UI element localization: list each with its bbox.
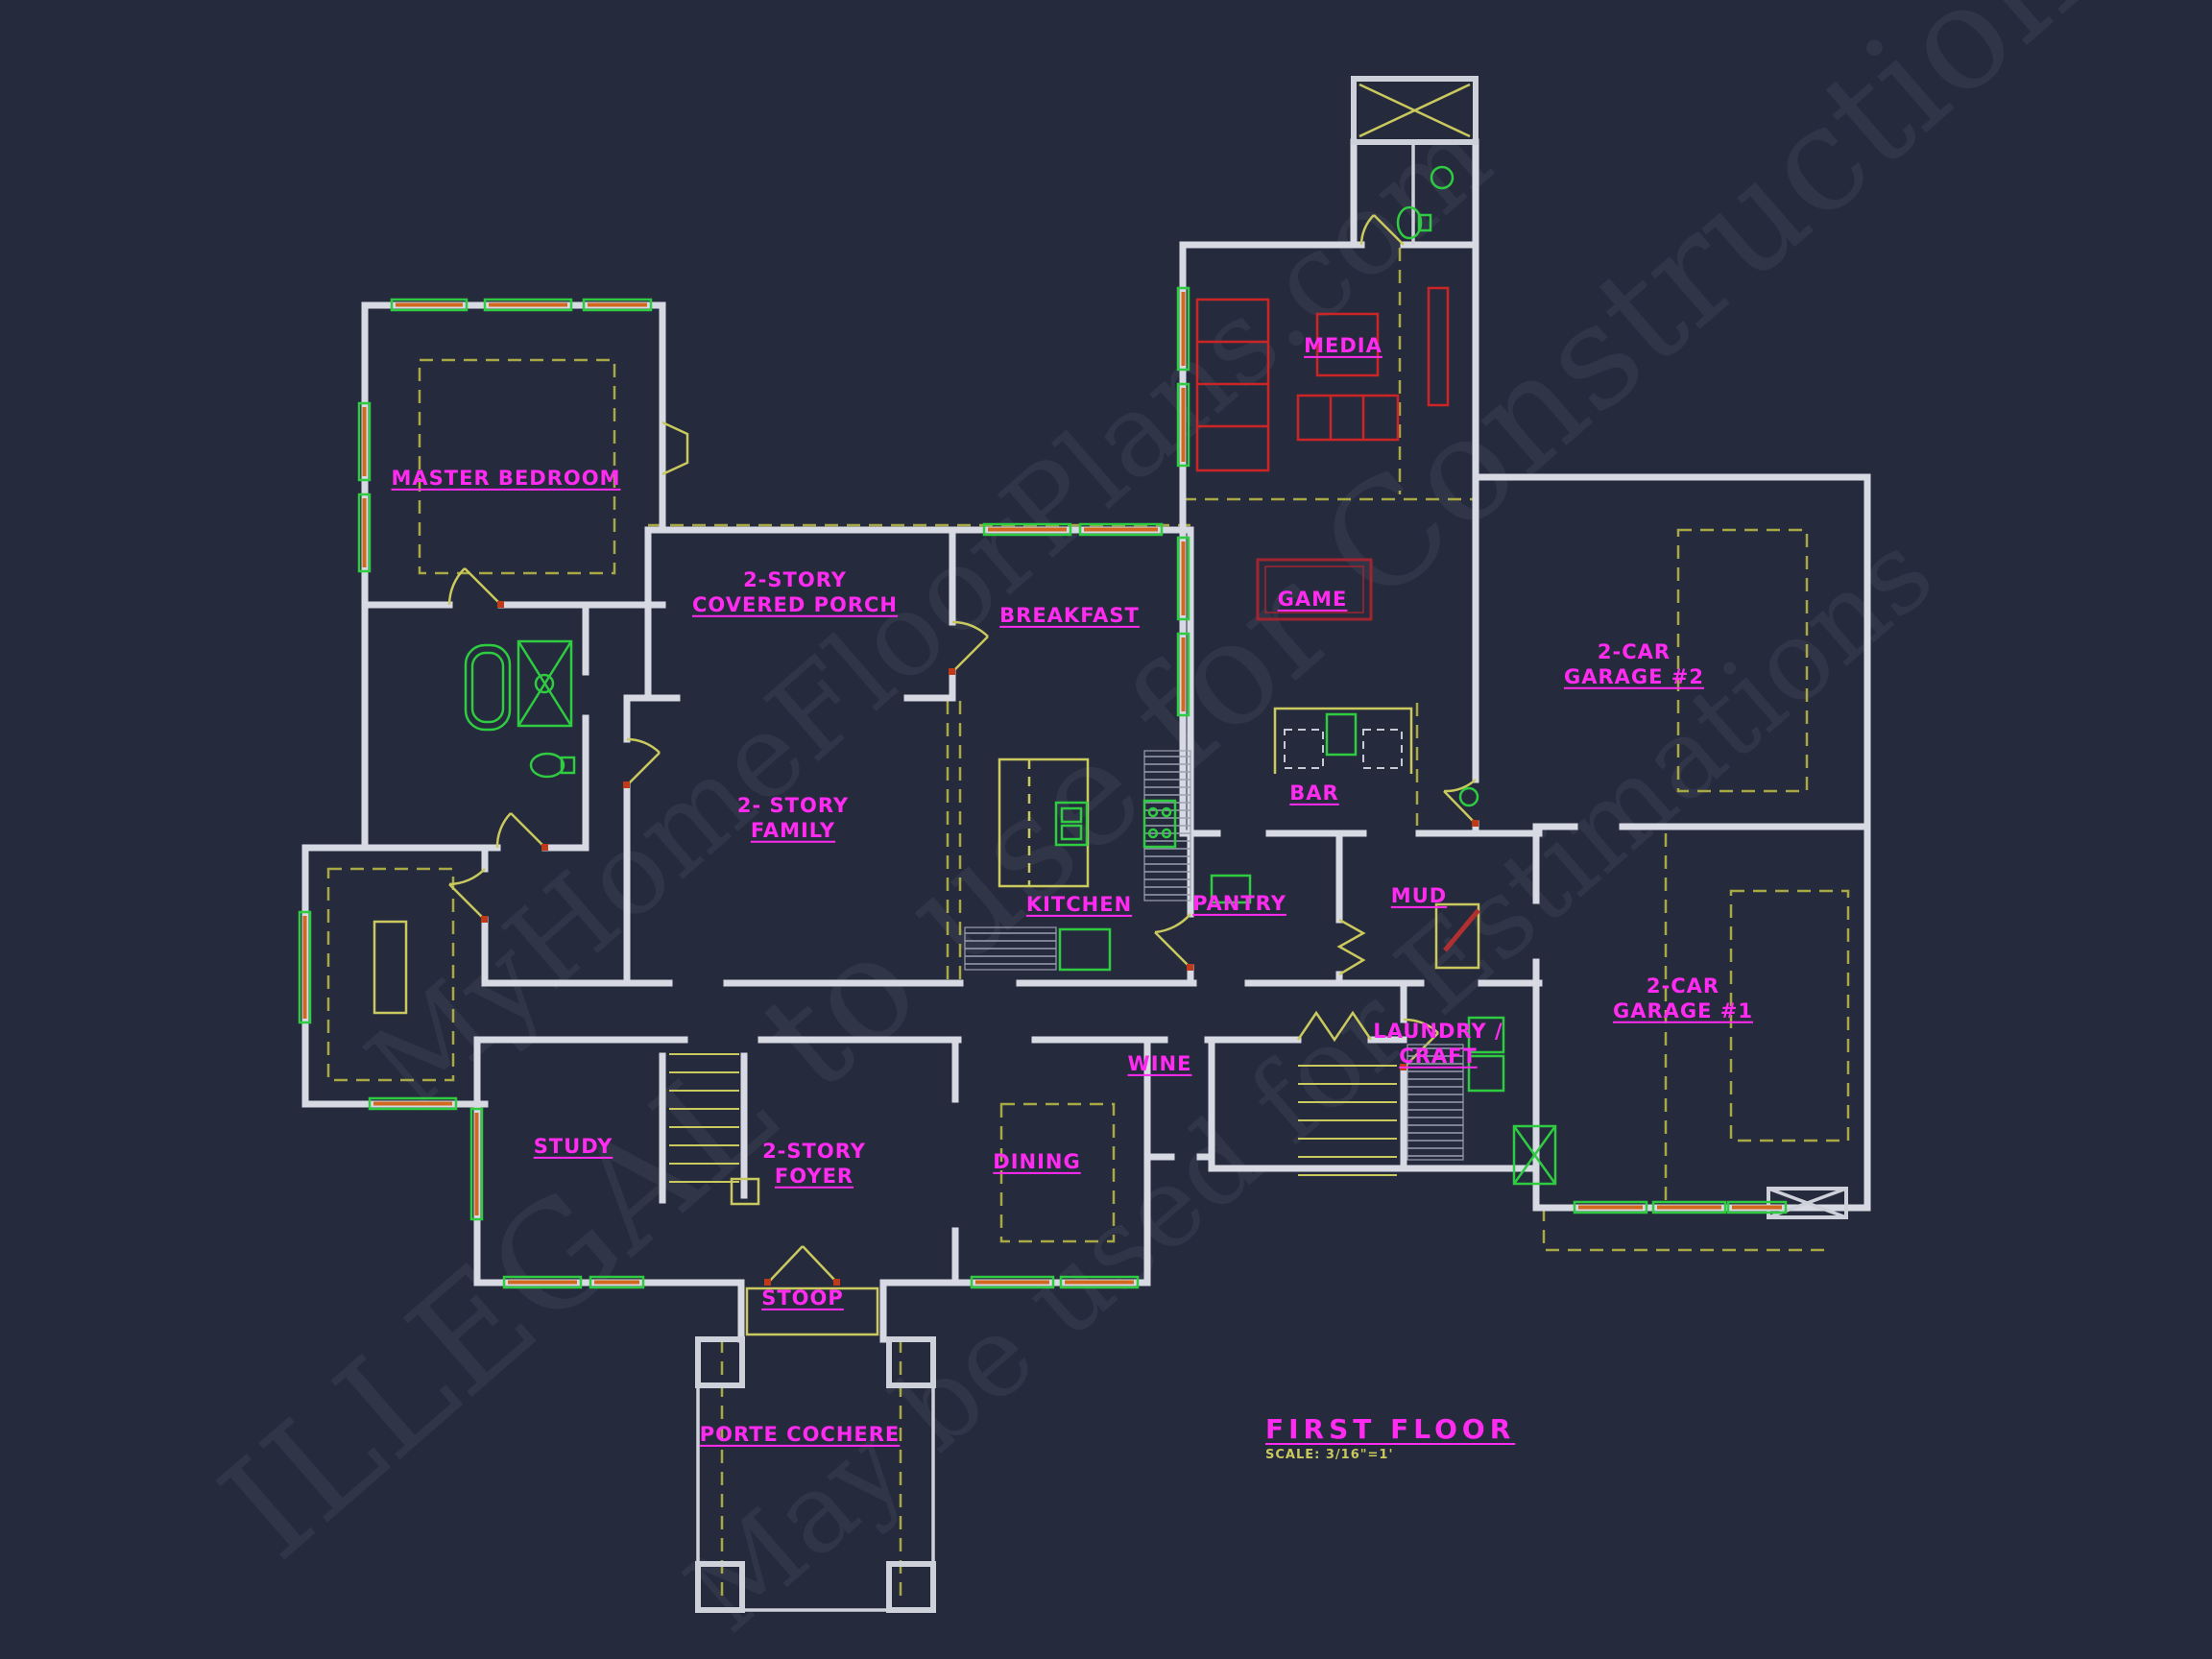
room-label-porte-cochere: PORTE COCHERE	[700, 1422, 901, 1447]
room-label-pantry: PANTRY	[1192, 891, 1286, 916]
room-label-garage1: 2-CARGARAGE #1	[1613, 974, 1753, 1024]
plan-title: FIRST FLOOR	[1265, 1413, 1515, 1445]
door-hardware	[1460, 788, 1478, 805]
room-label-wine: WINE	[1128, 1051, 1192, 1076]
room-label-family: 2- STORYFAMILY	[737, 793, 849, 844]
room-label-garage2: 2-CARGARAGE #2	[1564, 639, 1704, 690]
toilet	[531, 754, 564, 777]
room-label-foyer: 2-STORYFOYER	[762, 1139, 866, 1190]
bar-stools	[1285, 730, 1402, 768]
room-label-covered-porch: 2-STORYCOVERED PORCH	[692, 567, 898, 618]
fridge	[1060, 929, 1110, 970]
room-label-laundry: LAUNDRY /CRAFT	[1373, 1019, 1503, 1070]
room-label-master-bedroom: MASTER BEDROOM	[392, 466, 621, 491]
room-label-study: STUDY	[534, 1134, 613, 1159]
room-label-stoop: STOOP	[761, 1286, 844, 1310]
bar-sink	[1327, 714, 1356, 755]
room-label-bar: BAR	[1289, 781, 1338, 805]
room-label-media: MEDIA	[1304, 333, 1382, 358]
room-label-kitchen: KITCHEN	[1026, 892, 1132, 917]
plan-scale-note: SCALE: 3/16"=1'	[1265, 1448, 1393, 1462]
room-label-dining: DINING	[993, 1149, 1080, 1174]
room-label-breakfast: BREAKFAST	[999, 603, 1140, 628]
room-label-game: GAME	[1278, 587, 1348, 612]
front-door	[768, 1246, 837, 1283]
bay-window	[662, 422, 687, 474]
room-label-mud: MUD	[1391, 883, 1447, 908]
floorplan-canvas: MyHomeFloorPlans.com ILLEGAL to use for …	[0, 0, 2212, 1659]
floorplan-drawing: MyHomeFloorPlans.com ILLEGAL to use for …	[0, 0, 2212, 1659]
